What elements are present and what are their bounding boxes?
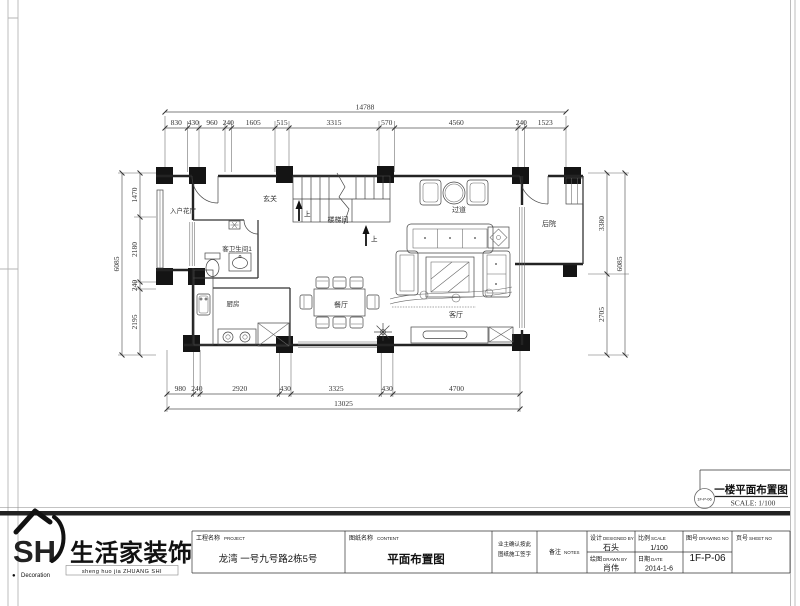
room-label-living: 客厅: [449, 310, 463, 319]
title-block-cells: 工程名称 PROJECT 龙湾 一号九号路2栋5号 图纸名称 CONTENT 平…: [196, 534, 772, 573]
dim-bottom-total: 13025: [334, 399, 353, 408]
date-label-en: DATE: [651, 557, 663, 562]
room-label-guest-bath: 客卫生间1: [222, 244, 252, 253]
drawn-label: 绘图: [590, 555, 602, 563]
drawn-label-en: DRAWN BY: [603, 557, 627, 562]
floor-plan-drawing: 14788 830 430 960 240 1605 515 3315 570 …: [0, 0, 800, 606]
dimension-labels: 14788 830 430 960 240 1605 515 3315 570 …: [112, 103, 624, 409]
confirm-line2: 图纸施工签字: [498, 550, 532, 558]
dim-top-seg-9: 240: [516, 118, 528, 127]
scale-label-en: SCALE: [651, 536, 666, 541]
notes-label: 备注: [549, 548, 561, 556]
dim-right-seg-0: 3380: [597, 216, 606, 231]
dim-top-seg-10: 1523: [538, 118, 553, 127]
notes-label-en: NOTES: [564, 550, 580, 555]
dim-bottom-seg-0: 980: [175, 384, 187, 393]
drawn-value: 肖伟: [603, 563, 619, 573]
stair-up-arrow-2: 上: [363, 225, 379, 246]
dim-bottom-seg-5: 430: [381, 384, 393, 393]
drawing-no-value: 1F-P-06: [689, 553, 726, 564]
content-label-en: CONTENT: [377, 536, 399, 541]
stair-up-arrow-1: 上: [296, 200, 312, 221]
dim-left-seg-3: 2195: [130, 314, 139, 329]
room-label-foyer: 玄关: [263, 194, 277, 203]
dim-top-seg-7: 570: [381, 118, 393, 127]
drawing-no-label: 图号: [686, 535, 698, 542]
dim-top-seg-5: 515: [276, 118, 288, 127]
title-strip: SH 生活家装饰 sheng huo jia ZHUANG SHI ● Deco…: [0, 508, 790, 580]
column-grid: [156, 166, 581, 353]
tv-cabinet: [411, 327, 513, 343]
doors: [192, 176, 548, 234]
logo-bullet-icon: ●: [12, 573, 16, 579]
room-label-entry-garden: 入户花厅: [170, 206, 197, 215]
project-label: 工程名称: [196, 534, 220, 542]
dim-bottom-seg-2: 2920: [232, 384, 247, 393]
date-label: 日期: [638, 555, 650, 563]
plant: [374, 323, 392, 341]
dim-top-seg-8: 4560: [449, 118, 464, 127]
drawing-label-badge: 1F-P-06: [697, 497, 712, 502]
stairs: 上 上: [293, 173, 390, 246]
logo-sub: Decoration: [21, 573, 50, 579]
room-label-dining: 餐厅: [334, 300, 348, 309]
sheet-no-label-en: SHEET NO: [749, 536, 772, 541]
date-value: 2014-1-6: [645, 566, 673, 573]
dim-top-seg-1: 430: [188, 118, 200, 127]
dim-left-total: 6085: [112, 256, 121, 271]
dim-right-total: 6085: [615, 256, 624, 271]
design-value: 石头: [603, 542, 619, 552]
drawing-sheet: 14788 830 430 960 240 1605 515 3315 570 …: [0, 0, 800, 606]
company-logo: SH 生活家装饰 sheng huo jia ZHUANG SHI ● Deco…: [12, 511, 193, 579]
dim-bottom-seg-1: 240: [191, 384, 203, 393]
room-labels: 入户花厅 玄关 客卫生间1 楼梯间 过道 后院 厨房 餐厅 客厅: [170, 194, 556, 319]
stair-up-label-1: 上: [304, 209, 311, 218]
dim-left-seg-2: 240: [130, 280, 139, 292]
dim-top-seg-3: 240: [223, 118, 235, 127]
dim-top-seg-2: 960: [206, 118, 218, 127]
dim-bottom-seg-3: 430: [280, 384, 292, 393]
room-label-backyard: 后院: [542, 219, 556, 228]
drawing-label-scale: SCALE: 1/100: [731, 499, 776, 508]
hallway-table-set: [420, 180, 488, 205]
logo-mark: SH: [13, 534, 56, 569]
project-label-en: PROJECT: [224, 536, 245, 541]
confirm-line1: 业主确认按此: [498, 540, 532, 548]
drawing-no-label-en: DRAWING NO: [699, 536, 729, 541]
windows: [190, 178, 583, 347]
sheet-no-label: 页号: [736, 535, 748, 542]
design-label: 设计: [590, 534, 602, 542]
dim-top-seg-4: 1605: [246, 118, 261, 127]
dim-top-seg-6: 3315: [327, 118, 342, 127]
content-value: 平面布置图: [387, 552, 445, 566]
sofa-set: [390, 224, 512, 307]
room-label-stairwell: 楼梯间: [328, 215, 349, 224]
porch-railing: [157, 190, 163, 268]
dim-bottom-seg-4: 3325: [329, 384, 344, 393]
scale-value: 1/100: [650, 545, 668, 552]
walls: [156, 176, 583, 345]
dim-right-seg-1: 2705: [597, 307, 606, 322]
scale-label: 比例: [638, 534, 650, 542]
logo-company-name: 生活家装饰: [70, 539, 193, 567]
coffee-table: [426, 257, 474, 297]
room-label-kitchen: 厨房: [227, 299, 240, 308]
stair-up-label-2: 上: [371, 234, 378, 243]
dim-top-total: 14788: [356, 103, 375, 112]
drawing-label-title: 一楼平面布置图: [714, 483, 788, 496]
dim-left-seg-0: 1470: [130, 187, 139, 202]
content-label: 图纸名称: [349, 534, 373, 542]
drawing-label-box: 1F-P-06 一楼平面布置图 SCALE: 1/100: [695, 470, 791, 509]
design-label-en: DESIGNED BY: [603, 536, 634, 541]
dim-top-seg-0: 830: [171, 118, 183, 127]
kitchen-fixtures: [194, 270, 289, 346]
dim-bottom-seg-6: 4700: [449, 384, 464, 393]
end-table: [488, 227, 509, 248]
dim-left-seg-1: 2180: [130, 242, 139, 257]
logo-pinyin: sheng huo jia ZHUANG SHI: [82, 569, 162, 575]
project-value: 龙湾 一号九号路2栋5号: [219, 553, 318, 565]
room-label-hallway: 过道: [452, 205, 466, 214]
